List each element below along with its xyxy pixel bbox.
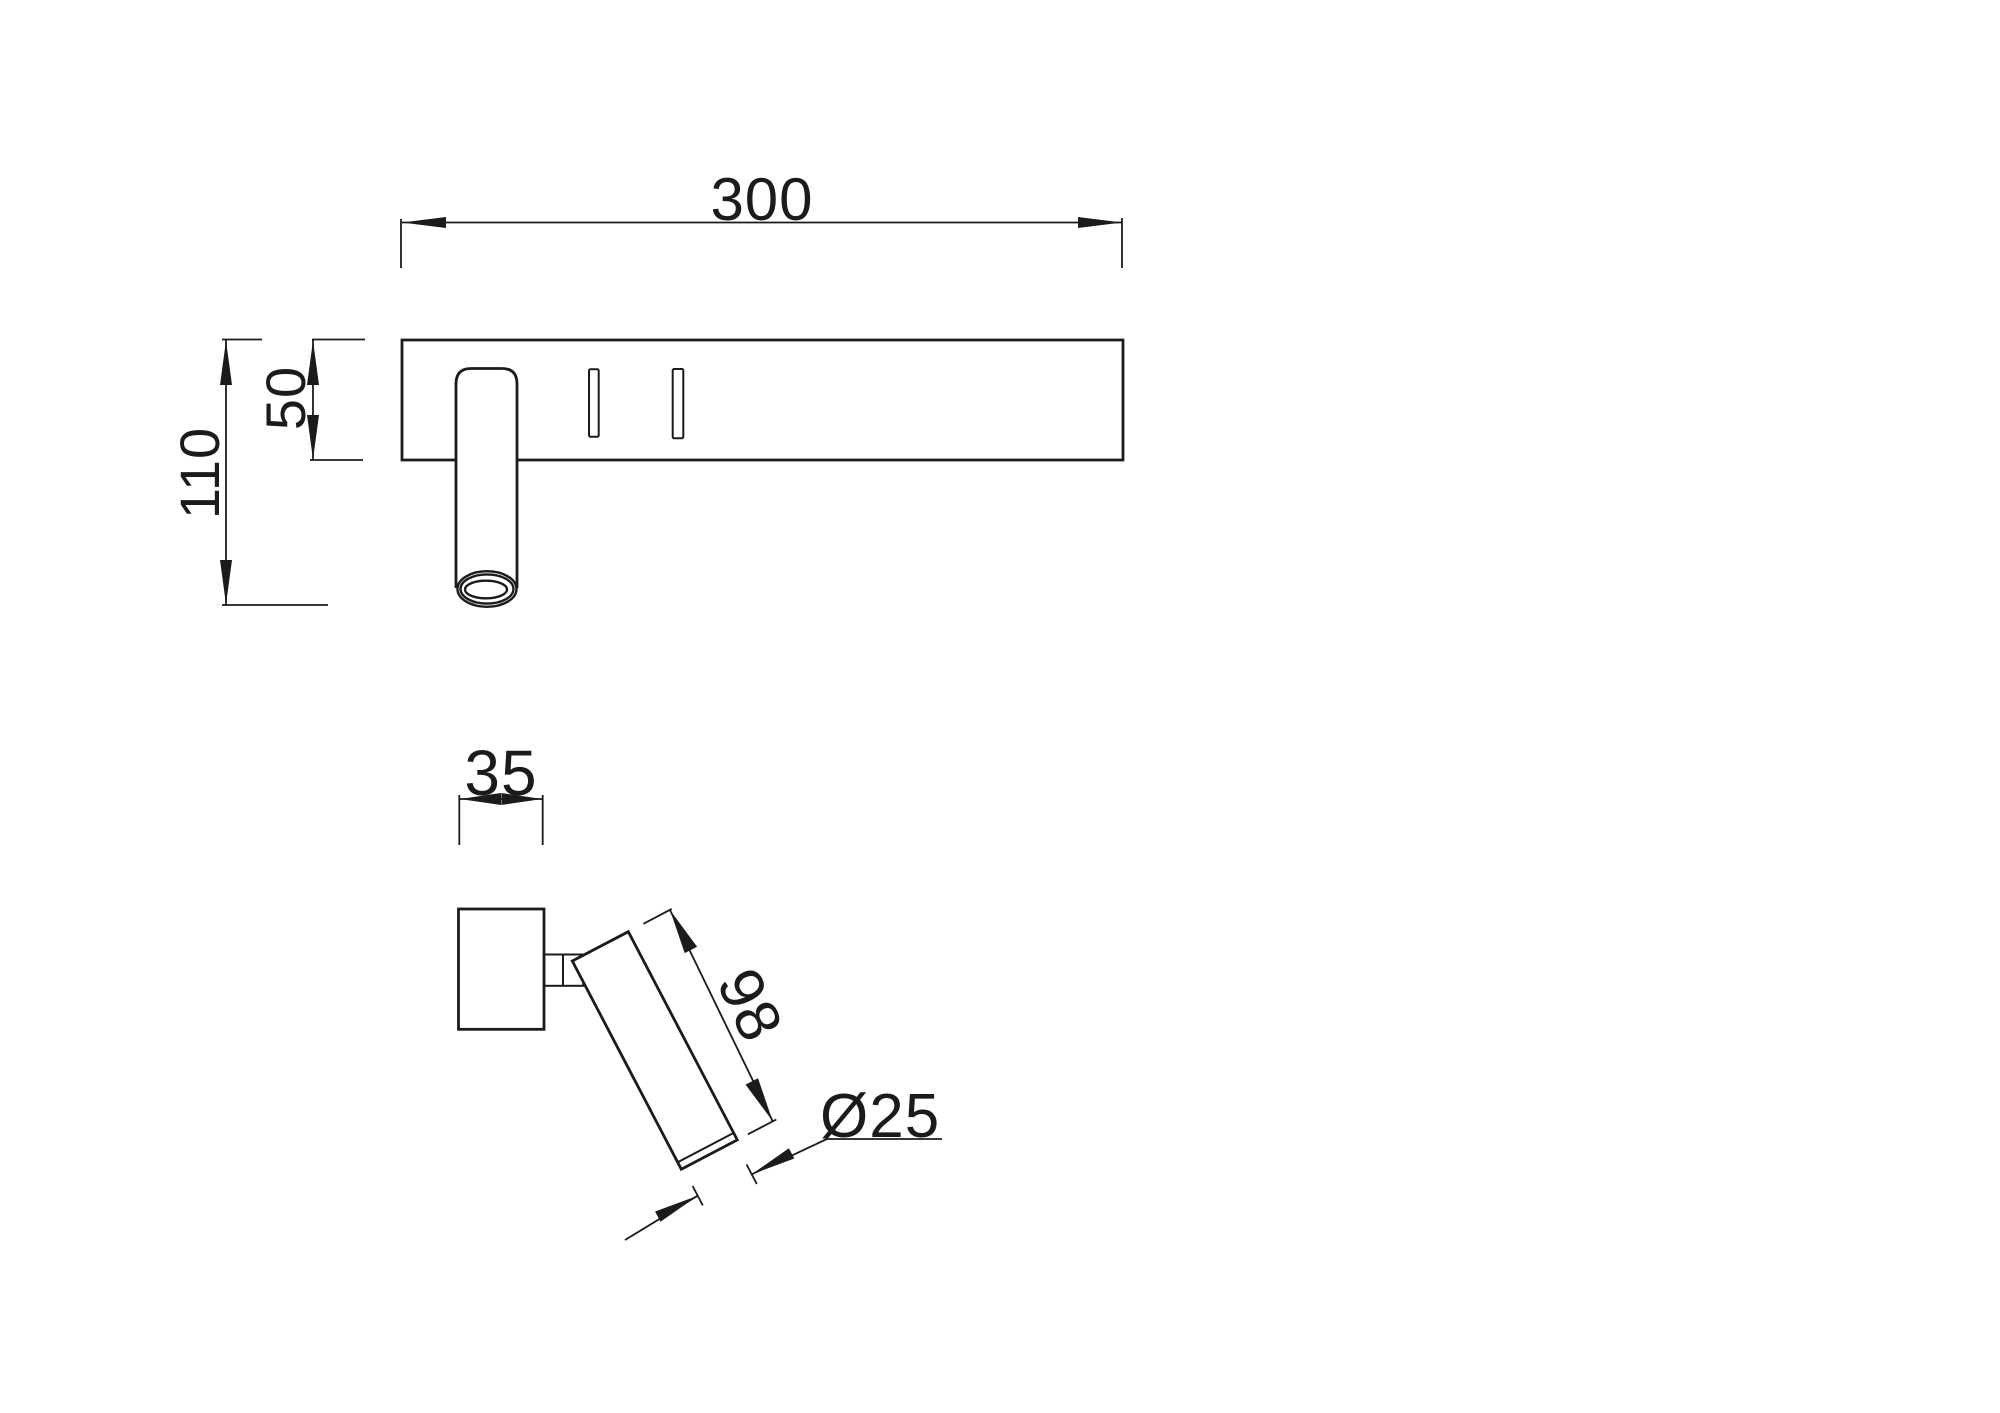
dim-diameter-label: Ø25 [820,1082,940,1151]
technical-drawing-canvas: 300 50 110 [0,0,2000,1413]
dim-110-label: 110 [168,427,231,519]
dim-50-label: 50 [254,366,317,430]
drawing-page: 300 50 110 [0,0,2000,1413]
tube-lens-inner-ellipse [465,581,507,599]
page-background [0,0,2000,1413]
dim-35-label: 35 [464,737,537,809]
lamp-tube-body [456,369,517,589]
dim-300-label: 300 [710,166,813,233]
